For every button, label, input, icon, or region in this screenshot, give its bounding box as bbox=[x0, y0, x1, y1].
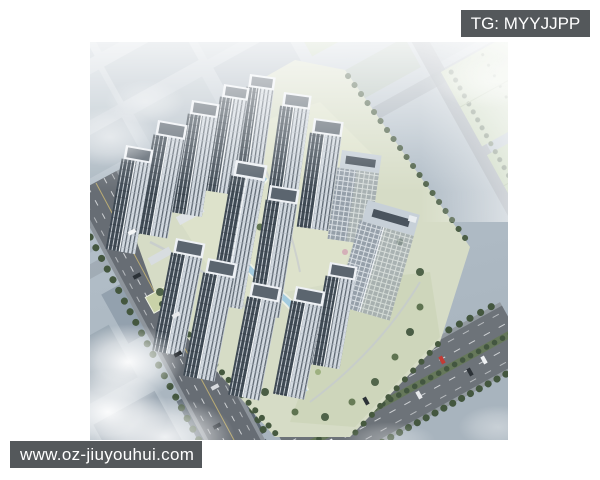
site-watermark-label: www.oz-jiuyouhui.com bbox=[10, 441, 202, 468]
screenshot-page: 知乎 @一条猪儿虫 TG: MYYJJPP www.oz-jiuyouhui.c… bbox=[0, 0, 600, 480]
telegram-watermark-label: TG: MYYJJPP bbox=[461, 10, 590, 37]
aerial-render-photo: 知乎 @一条猪儿虫 bbox=[90, 42, 508, 440]
